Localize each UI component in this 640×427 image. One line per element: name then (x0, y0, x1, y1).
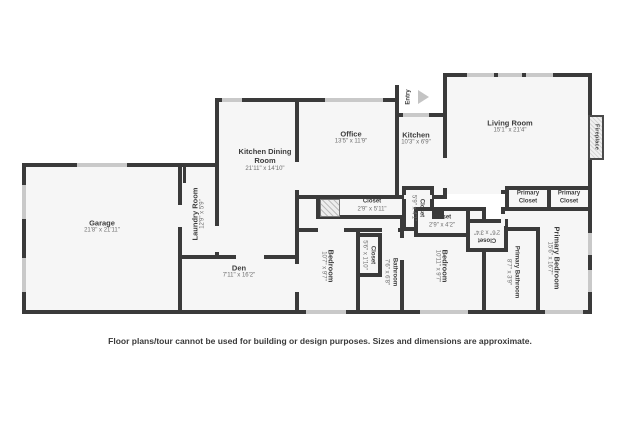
room-office (295, 98, 399, 199)
window (22, 258, 26, 292)
window (420, 310, 468, 314)
door-opening (404, 195, 432, 199)
room-bedroom-1 (295, 228, 360, 314)
window (467, 73, 553, 77)
window (325, 98, 383, 102)
door-opening (215, 226, 219, 252)
window (306, 310, 346, 314)
door-opening (400, 238, 404, 260)
room-living (443, 73, 592, 194)
door-opening (178, 205, 182, 227)
door-opening (318, 228, 344, 232)
window-mullion (522, 73, 526, 77)
window (403, 113, 429, 117)
window (222, 98, 242, 102)
room-garage (22, 163, 182, 314)
window (545, 310, 583, 314)
wall-pier (183, 167, 186, 183)
entry-arrow-icon (418, 90, 429, 104)
closet-bedroom-1 (356, 233, 382, 277)
closet-hatch (320, 199, 340, 217)
disclaimer-text: Floor plans/tour cannot be used for buil… (0, 336, 640, 346)
floor-plan: Garage 21'8" x 21'11" Laundry Room 12'9"… (0, 0, 640, 427)
door-opening (501, 214, 505, 226)
door-opening (382, 228, 398, 232)
door-opening (295, 162, 299, 190)
door-opening (486, 227, 502, 231)
closet-primary-1 (505, 186, 551, 211)
closet-primary-2 (547, 186, 592, 211)
window (588, 270, 592, 292)
door-opening (236, 255, 264, 259)
window (77, 163, 127, 167)
door-opening (443, 158, 447, 188)
window-mullion (494, 73, 498, 77)
door-opening (447, 190, 501, 194)
fireplace-box (588, 115, 604, 160)
window (588, 233, 592, 255)
wall-pier (432, 207, 444, 219)
room-den (178, 255, 299, 314)
window (22, 185, 26, 219)
entry-porch-wall (395, 85, 399, 115)
room-kitchen-dining (215, 98, 299, 259)
door-opening (295, 264, 299, 292)
